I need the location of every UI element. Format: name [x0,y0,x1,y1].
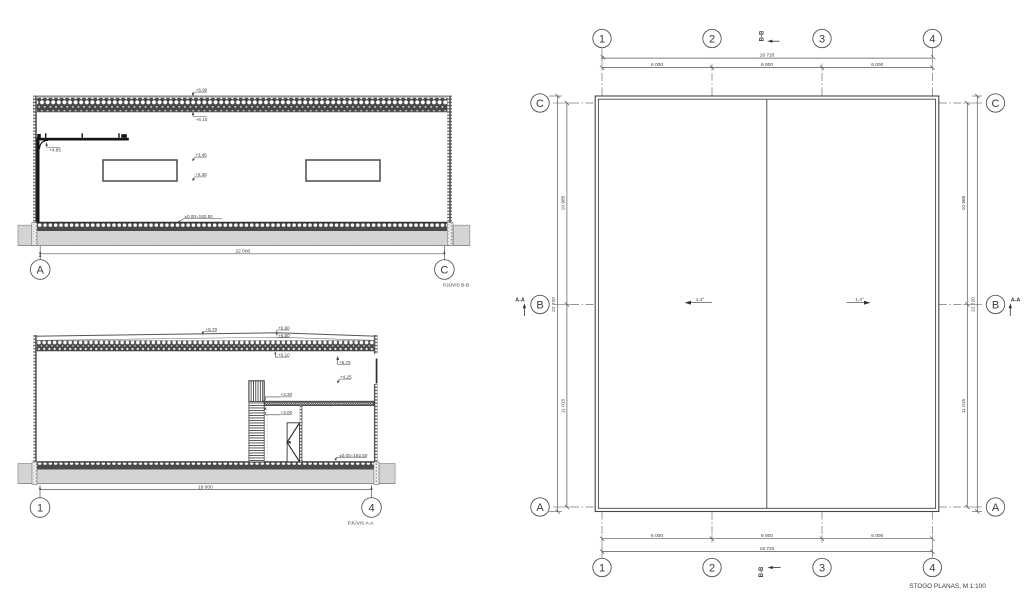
svg-text:+6.90: +6.90 [278,325,290,330]
svg-text:+6.90: +6.90 [196,87,208,92]
svg-text:1: 1 [37,502,43,514]
svg-text:+3.45: +3.45 [195,152,207,157]
svg-text:6 000: 6 000 [871,533,883,539]
svg-text:10 985: 10 985 [560,195,566,210]
svg-text:6 000: 6 000 [651,62,663,68]
svg-text:4: 4 [368,502,374,514]
svg-text:18 720: 18 720 [760,53,775,59]
svg-text:A: A [536,502,544,514]
svg-text:PJŪVIS B-B: PJŪVIS B-B [443,281,469,288]
svg-text:10 985: 10 985 [961,195,967,210]
svg-text:6 000: 6 000 [761,533,773,539]
svg-text:+5.75: +5.75 [339,360,351,365]
svg-text:2: 2 [709,562,715,574]
svg-text:6 000: 6 000 [651,533,663,539]
svg-text:+6.70: +6.70 [206,327,218,332]
svg-text:1: 1 [599,33,605,45]
svg-text:A: A [37,264,45,276]
svg-text:6 000: 6 000 [871,62,883,68]
svg-text:4: 4 [929,562,935,574]
svg-text:C: C [536,98,544,110]
svg-text:A: A [992,502,1000,514]
svg-text:18 000: 18 000 [198,484,213,490]
svg-text:6 000: 6 000 [761,62,773,68]
svg-text:+6.10: +6.10 [196,117,208,122]
svg-text:+4.85: +4.85 [49,147,61,152]
svg-text:A-A: A-A [1011,298,1021,304]
svg-text:3: 3 [819,562,825,574]
svg-text:+6.60: +6.60 [278,333,290,338]
svg-text:1,4°: 1,4° [696,297,705,303]
svg-text:11 015: 11 015 [560,399,566,414]
svg-text:22 720: 22 720 [971,297,977,312]
svg-text:11 015: 11 015 [961,399,967,414]
svg-text:B-B: B-B [759,566,765,577]
svg-text:B: B [536,299,543,311]
svg-text:4: 4 [929,33,935,45]
svg-text:+3.00: +3.00 [281,410,293,415]
svg-text:A-A: A-A [515,298,525,304]
svg-text:1,4°: 1,4° [855,297,864,303]
svg-text:C: C [440,264,448,276]
svg-text:B: B [992,299,999,311]
svg-text:±0.00=192.50: ±0.00=192.50 [185,214,214,219]
svg-text:±0.00=192.50: ±0.00=192.50 [339,453,368,458]
svg-text:18 720: 18 720 [760,546,775,552]
svg-text:+6.10: +6.10 [278,352,290,357]
svg-text:+2.30: +2.30 [195,172,207,177]
svg-text:+3.30: +3.30 [281,392,293,397]
svg-text:3: 3 [819,33,825,45]
svg-text:B-B: B-B [759,30,765,41]
svg-text:STOGO PLANAS, M 1:100: STOGO PLANAS, M 1:100 [909,583,986,590]
svg-text:22 000: 22 000 [236,249,251,255]
svg-text:1: 1 [599,562,605,574]
svg-text:C: C [992,98,1000,110]
svg-text:PJŪVIS A-A: PJŪVIS A-A [348,519,375,526]
svg-text:2: 2 [709,33,715,45]
svg-text:+4.25: +4.25 [340,374,352,379]
